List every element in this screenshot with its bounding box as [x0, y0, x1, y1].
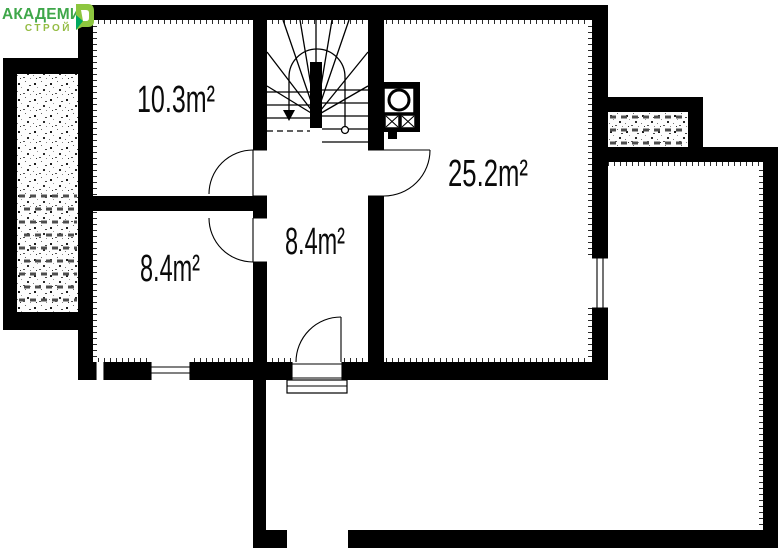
door-arc-top-left-room: [209, 150, 253, 194]
room-area-label-hall: 8.4m²: [285, 221, 345, 263]
window-south: [151, 362, 190, 380]
stair-direction-arrow: [283, 110, 295, 121]
chimney-symbol: [378, 82, 420, 139]
house-south-wall: [190, 362, 292, 380]
floor-plan-drawing: 10.3m² 25.2m² 8.4m² 8.4m²: [0, 0, 778, 548]
stair-spine-wall: [310, 62, 322, 128]
logo-brand-subtitle: СТРОЙ: [2, 23, 72, 34]
left-terrace-north-wall: [3, 58, 83, 74]
chimney-flue-circle: [389, 90, 409, 110]
south-wall-notch: [96, 362, 104, 380]
room-area-label-right: 25.2m²: [448, 153, 528, 195]
logo: АКАДЕМИК СТРОЙ: [2, 6, 72, 34]
door-jambs-bottom-left-room: [253, 218, 267, 262]
house-south-wall: [342, 362, 608, 380]
hall-west-wall: [253, 20, 267, 150]
window-east: [592, 258, 608, 308]
annex-east-wall: [763, 147, 778, 548]
logo-brand-name: АКАДЕМИК: [2, 6, 72, 23]
room-area-label-top-left: 10.3m²: [137, 79, 215, 121]
house-north-wall: [78, 5, 608, 20]
door-arc-right-room: [384, 150, 430, 196]
stair-walk-line-start-circle: [342, 127, 349, 134]
hall-east-wall: [368, 196, 384, 362]
courtyard-south-wall-stub: [265, 530, 287, 548]
left-terrace-floor-texture: [17, 74, 78, 312]
courtyard-west-wall: [253, 380, 266, 548]
left-terrace-west-wall: [3, 58, 17, 330]
hall-west-wall: [253, 196, 267, 218]
room-labels: 10.3m² 25.2m² 8.4m² 8.4m²: [137, 79, 528, 290]
room-partition-wall: [93, 196, 253, 211]
right-entry-steps: [608, 112, 688, 147]
door-jambs-top-left-room: [253, 150, 267, 196]
house-east-wall-upper: [592, 5, 608, 258]
left-terrace: [17, 74, 78, 312]
door-arc-bottom-left-room: [209, 218, 253, 262]
house-south-wall: [104, 362, 151, 380]
logo-icon: [72, 2, 97, 31]
room-area-label-bottom-left: 8.4m²: [140, 248, 200, 290]
door-jambs-right-room: [368, 150, 430, 196]
left-terrace-south-wall: [3, 312, 83, 330]
house-south-wall: [78, 362, 96, 380]
hall-west-wall: [253, 262, 267, 362]
door-jambs-south-exit: [292, 317, 342, 380]
door-arc-south-exit: [296, 317, 341, 362]
annex-south-wall: [348, 530, 778, 548]
floor-plan-page: 10.3m² 25.2m² 8.4m² 8.4m² АКАДЕМИК СТРОЙ: [0, 0, 778, 548]
annex-north-wall: [592, 147, 778, 162]
